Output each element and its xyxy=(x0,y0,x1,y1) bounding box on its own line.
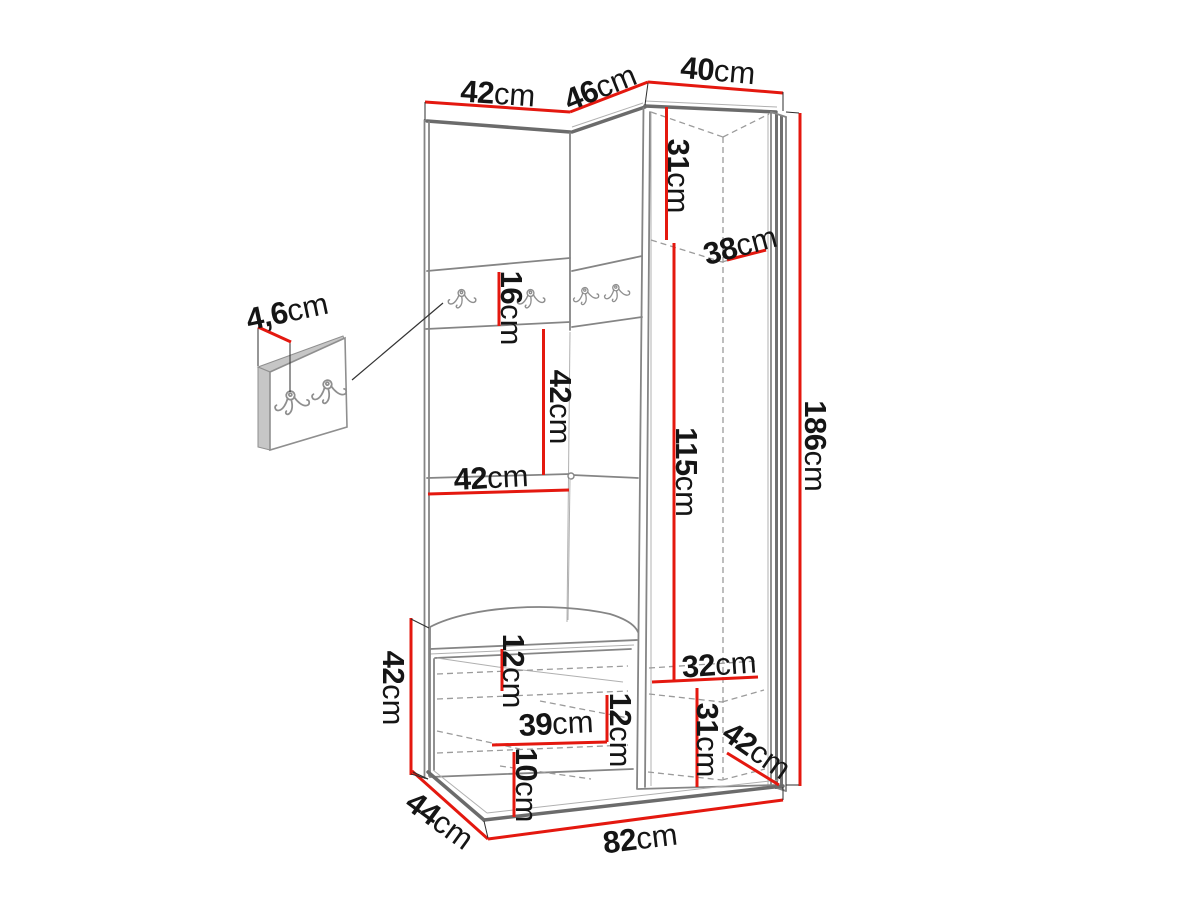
coat-hooks-row xyxy=(447,282,630,308)
hook-band-top-left xyxy=(427,258,570,271)
dim-label-32: 32cm xyxy=(680,644,757,684)
dim-label-16: 16cm xyxy=(495,271,530,346)
dimension-labels: 42cm 46cm 40cm 31cm 38cm 16cm 42cm 42cm … xyxy=(243,49,834,860)
corner-wardrobe-top-edge xyxy=(645,106,776,112)
dim-label-186: 186cm xyxy=(799,400,834,492)
dim-label-4-6: 4,6cm xyxy=(243,285,331,336)
dim-label-115: 115cm xyxy=(670,427,705,517)
coat-hook-icon xyxy=(572,285,600,306)
hook-band-bottom-angled xyxy=(572,317,642,327)
product-dimension-diagram: 42cm 46cm 40cm 31cm 38cm 16cm 42cm 42cm … xyxy=(0,0,1200,900)
wardrobe-door-edge xyxy=(771,112,786,791)
coat-hook-icon xyxy=(447,289,476,309)
left-cabinet-top-edge xyxy=(427,121,570,132)
wardrobe-left-outer-edge xyxy=(637,108,644,789)
panel-side-edge xyxy=(258,367,270,450)
dim-label-31-top: 31cm xyxy=(662,139,697,214)
niche-divider-right xyxy=(572,475,638,478)
dimension-drawing-canvas: 42cm 46cm 40cm 31cm 38cm 16cm 42cm 42cm … xyxy=(0,0,1200,900)
dim-label-12-seat: 12cm xyxy=(497,634,532,709)
bench-opening-top xyxy=(435,649,631,658)
bench-cushion-bottom xyxy=(430,640,637,649)
dim-line-39 xyxy=(492,742,607,745)
hook-band-top-angled xyxy=(572,256,642,271)
dim-label-42-bench: 42cm xyxy=(377,651,412,726)
dim-label-39: 39cm xyxy=(518,704,595,743)
dim-label-10: 10cm xyxy=(510,748,545,823)
dim-label-42-niche-h: 42cm xyxy=(544,370,579,445)
bench-cushion-top xyxy=(430,607,638,632)
divider-knob xyxy=(568,473,574,479)
dim-label-42-niche-w: 42cm xyxy=(453,458,530,497)
dim-label-top-40: 40cm xyxy=(679,49,757,90)
coat-hook-icon xyxy=(603,282,631,303)
panel-front-face xyxy=(270,338,347,450)
dim-label-12-shelf: 12cm xyxy=(604,693,639,768)
dim-label-top-42: 42cm xyxy=(459,73,536,113)
wardrobe-left-inner-edge xyxy=(645,112,650,787)
